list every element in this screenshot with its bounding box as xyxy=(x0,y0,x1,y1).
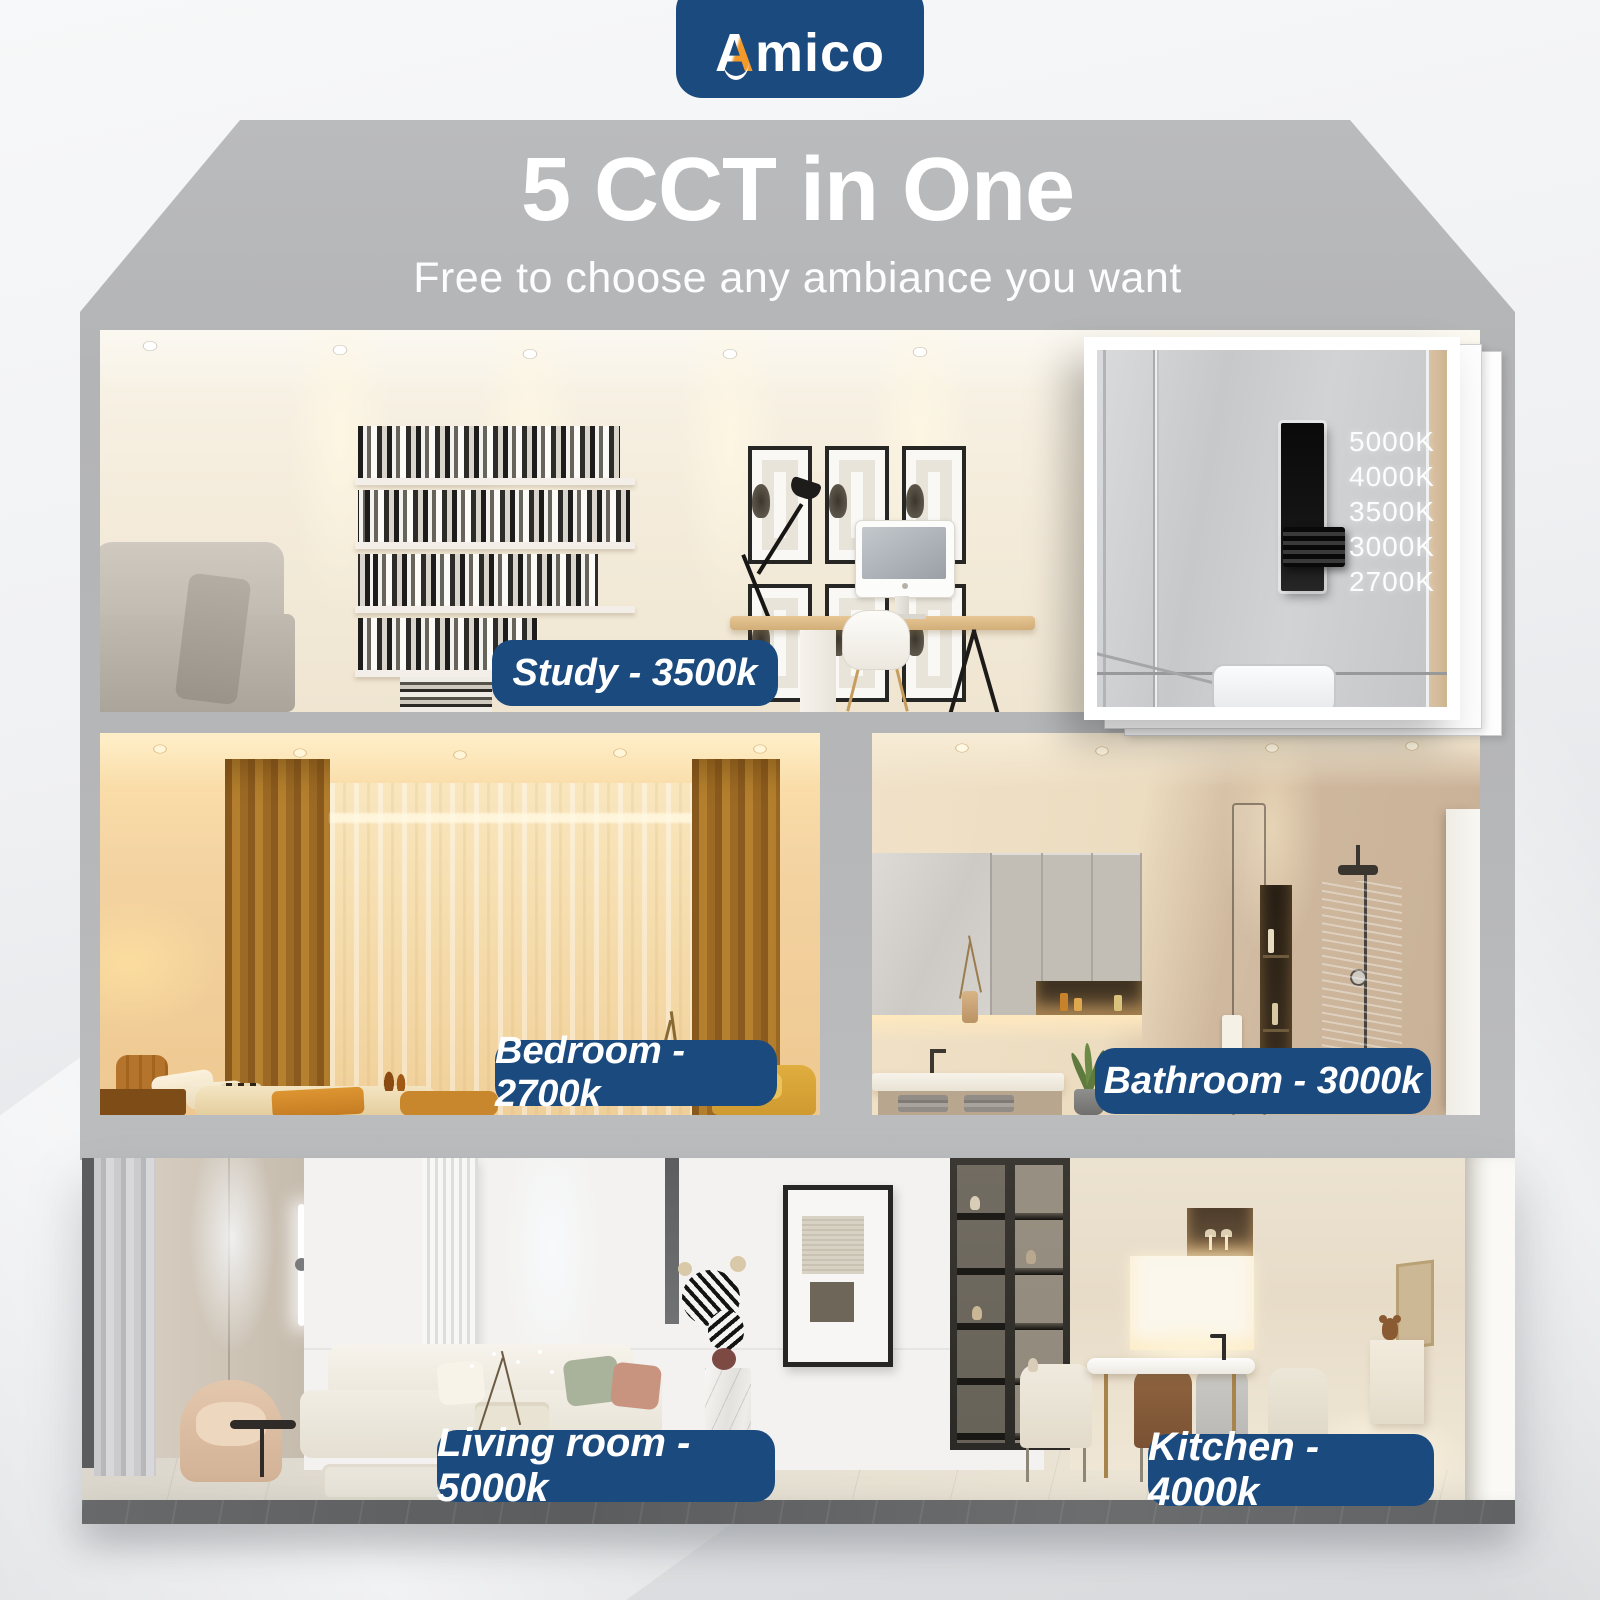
imac-logo-icon xyxy=(902,583,908,589)
desk-chair xyxy=(842,610,910,670)
cabinet-figurine xyxy=(1026,1250,1036,1264)
towel-stack xyxy=(964,1095,1014,1112)
bedside-bench xyxy=(100,1089,186,1115)
bedroom-curtain-left xyxy=(225,759,330,1115)
page-title: 5 CCT in One xyxy=(80,140,1515,240)
shower-head xyxy=(1338,865,1378,875)
dining-chair-cream xyxy=(1020,1364,1092,1448)
sofa-pillow-terracotta xyxy=(610,1362,662,1411)
decanter-tray xyxy=(382,1071,408,1091)
island-faucet xyxy=(1222,1334,1226,1360)
cabinet-figurine xyxy=(970,1196,980,1210)
sculpture-base-ball xyxy=(712,1348,736,1370)
junction-box-photo: 5000K 4000K 3500K 3000K 2700K xyxy=(1097,350,1447,707)
vanity-counter xyxy=(872,1073,1064,1091)
bookshelf-row xyxy=(358,554,598,606)
under-cabinet-glow xyxy=(872,1015,1142,1043)
desk-leg-panel xyxy=(800,630,836,712)
kitchen-tall-column xyxy=(1465,1158,1515,1500)
cct-option-5000k: 5000K xyxy=(1349,424,1435,459)
cct-option-labels: 5000K 4000K 3500K 3000K 2700K xyxy=(1349,424,1435,599)
bathroom-faucet xyxy=(930,1049,934,1075)
study-label-badge: Study - 3500k xyxy=(492,640,778,706)
cable-clamp xyxy=(1212,664,1336,707)
bookshelf-board xyxy=(355,606,635,613)
imac-screen xyxy=(862,527,946,579)
cabinet-figurine xyxy=(1028,1358,1038,1372)
bedroom-window-glow xyxy=(330,813,695,823)
decor-blossoms xyxy=(460,1346,560,1400)
cabinet-lighted-niche xyxy=(1036,981,1142,1015)
amico-logo: Amico xyxy=(676,0,924,98)
book-stack xyxy=(400,677,492,712)
bathroom-vase xyxy=(962,991,978,1023)
bookshelf-board xyxy=(355,542,635,549)
imac-computer xyxy=(855,520,955,598)
amico-logo-rest: mico xyxy=(755,23,885,83)
cabinet-figurine xyxy=(972,1306,982,1320)
cct-option-2700k: 2700K xyxy=(1349,564,1435,599)
chair-legs xyxy=(1026,1448,1086,1482)
cct-option-4000k: 4000K xyxy=(1349,459,1435,494)
zebra-sculpture-snout xyxy=(708,1310,744,1350)
dining-table-leg xyxy=(1104,1374,1108,1478)
kitchen-console xyxy=(1370,1340,1424,1424)
panel-seam xyxy=(1153,350,1159,707)
bedroom-ottoman xyxy=(400,1091,498,1115)
living-room-label-badge: Living room - 5000k xyxy=(437,1430,775,1502)
bookshelf-board xyxy=(355,478,635,485)
dining-table xyxy=(1087,1358,1255,1374)
coffee-table xyxy=(230,1420,296,1429)
amico-logo-wordmark: Amico xyxy=(715,22,885,84)
cct-option-3000k: 3000K xyxy=(1349,529,1435,564)
page-subtitle: Free to choose any ambiance you want xyxy=(80,252,1515,304)
bookshelf-row xyxy=(358,426,620,478)
bathroom-label-badge: Bathroom - 3000k xyxy=(1095,1048,1431,1114)
cct-switch-slider xyxy=(1283,527,1345,567)
leaning-picture-frame xyxy=(1396,1260,1434,1351)
zebra-sculpture-ears xyxy=(678,1262,692,1276)
bedroom-label-badge: Bedroom - 2700k xyxy=(495,1040,777,1106)
poster-canvas: 5 CCT in One Free to choose any ambiance… xyxy=(0,0,1600,1600)
bathroom-right-column xyxy=(1446,809,1480,1115)
towel-stack xyxy=(898,1095,948,1112)
living-armchair xyxy=(180,1380,282,1482)
bookshelf-row xyxy=(358,490,630,542)
cct-option-3500k: 3500K xyxy=(1349,494,1435,529)
bed-throw-blanket xyxy=(271,1087,364,1115)
cct-switch-inset: 5000K 4000K 3500K 3000K 2700K xyxy=(1084,337,1460,720)
teddy-figurine xyxy=(1382,1318,1398,1340)
kitchen-label-badge: Kitchen - 4000k xyxy=(1148,1434,1434,1506)
